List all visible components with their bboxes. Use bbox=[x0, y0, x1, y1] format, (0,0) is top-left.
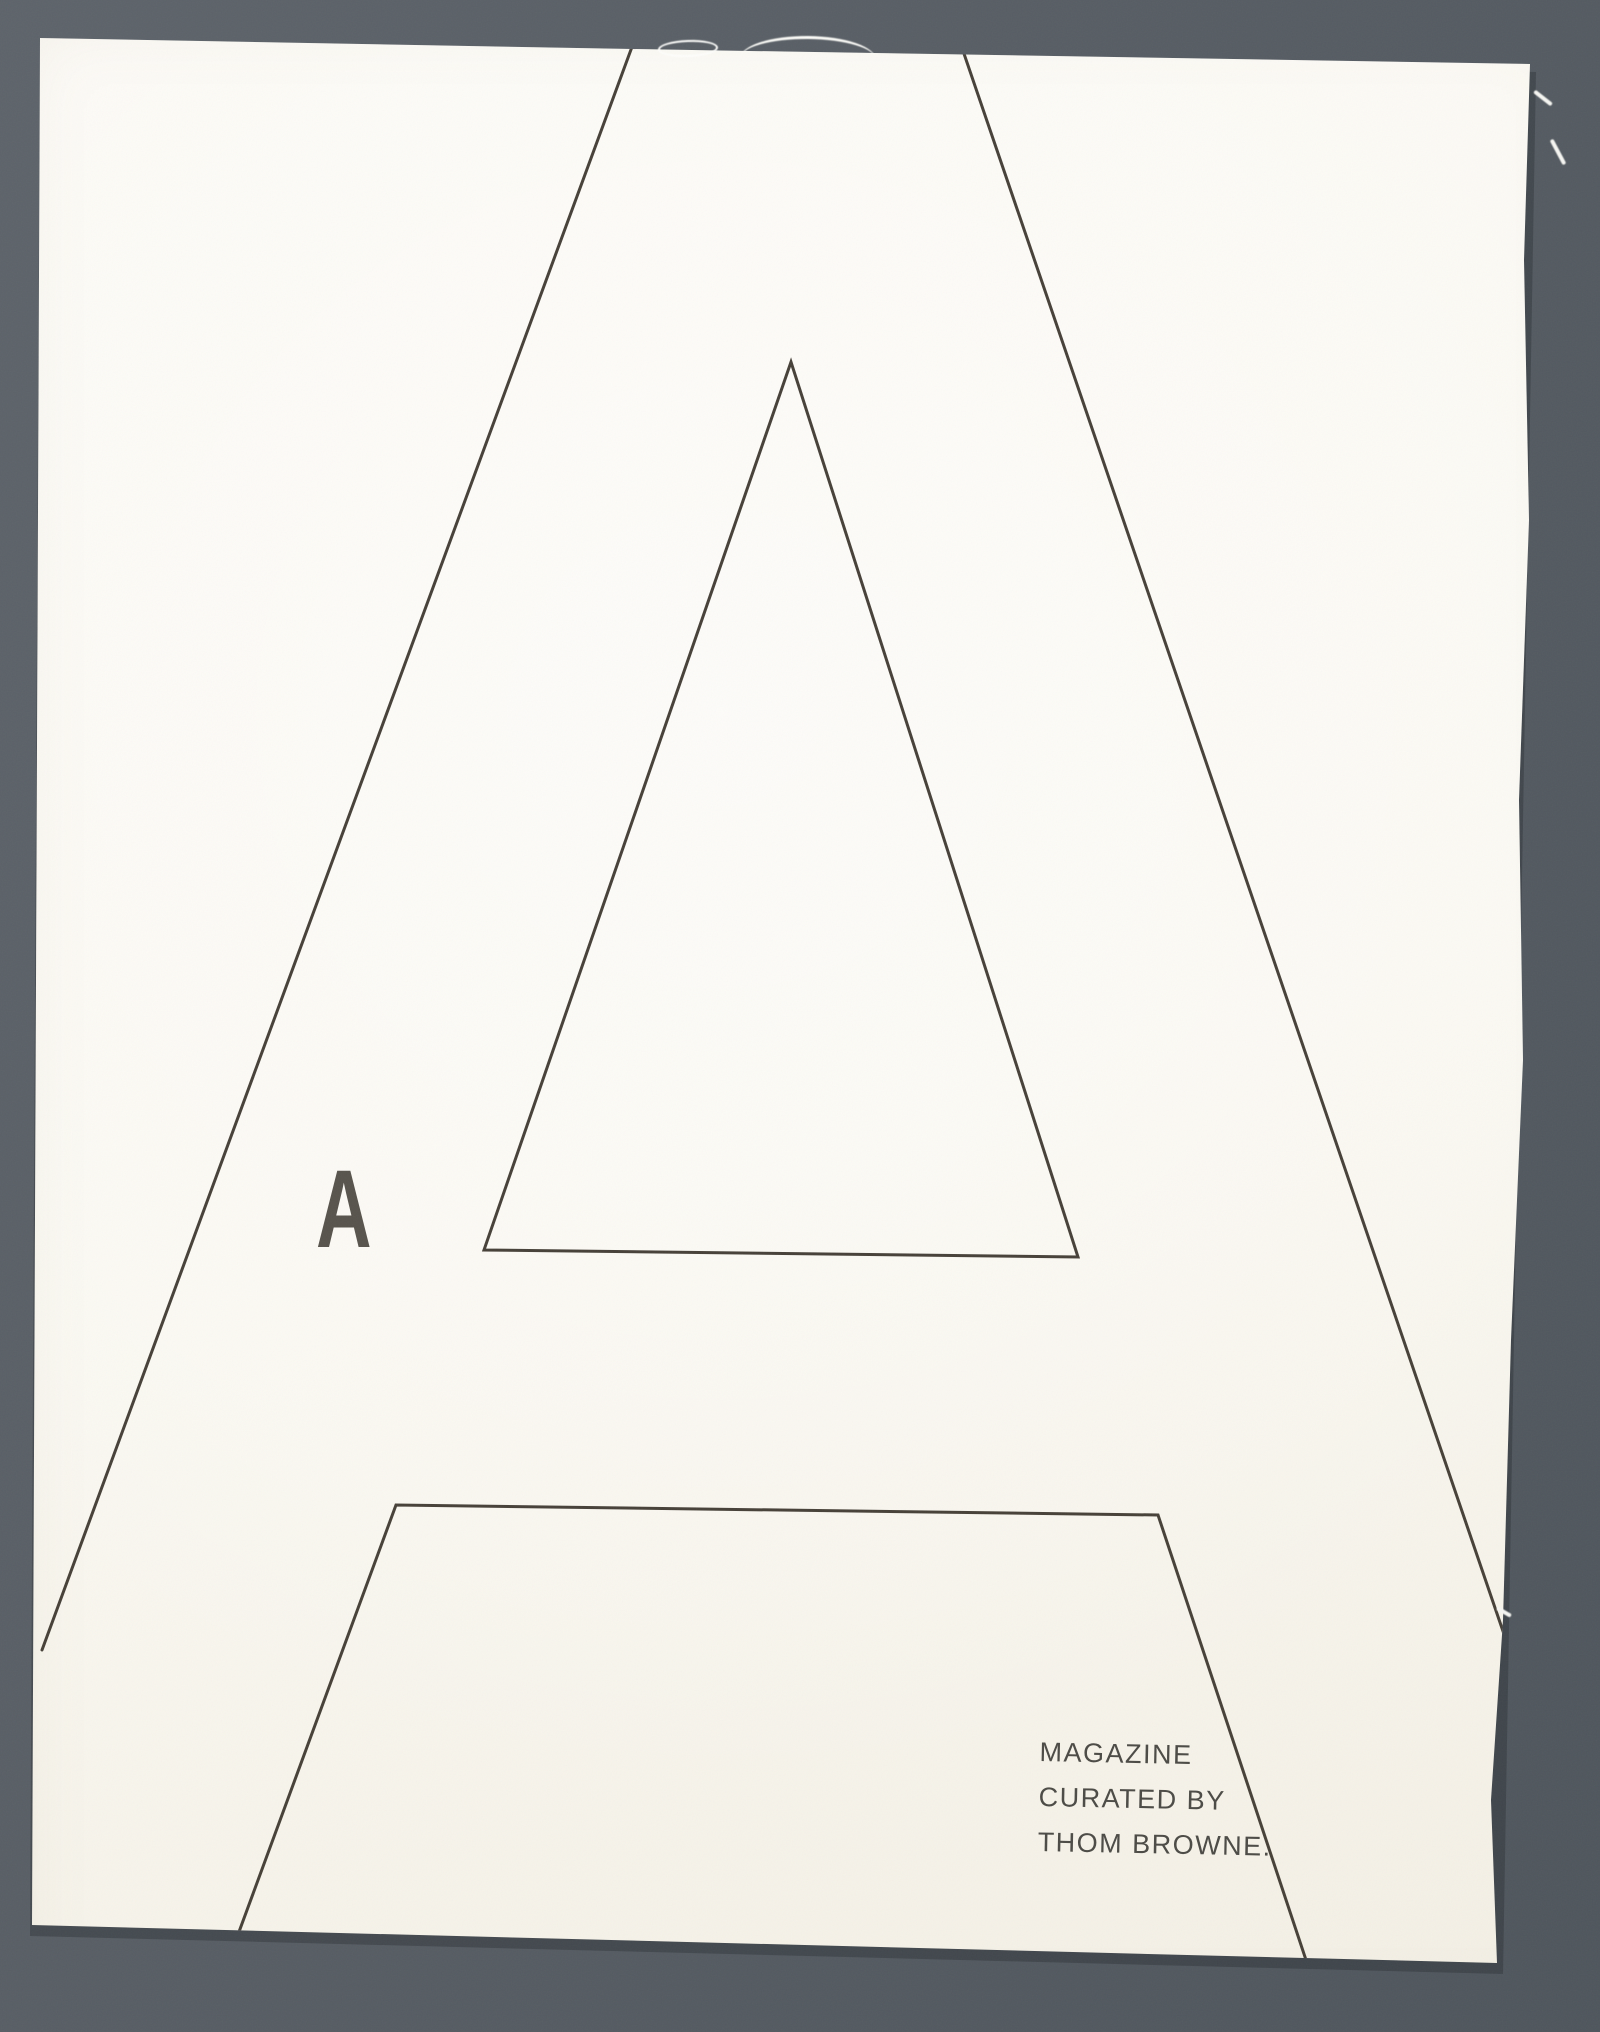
magazine-cover-sheet: A MAGAZINE CURATED BY THOM BROWNE. bbox=[0, 0, 1600, 2032]
photo-background-mat: A MAGAZINE CURATED BY THOM BROWNE. bbox=[0, 0, 1600, 2032]
caption-line-curated-by: CURATED BY bbox=[1038, 1775, 1273, 1825]
letter-a-outline-artwork bbox=[0, 0, 1600, 2032]
cover-caption: MAGAZINE CURATED BY THOM BROWNE. bbox=[1037, 1730, 1274, 1870]
small-letter-a: A bbox=[316, 1155, 372, 1265]
edge-fiber-wisp bbox=[1533, 90, 1553, 107]
caption-line-magazine: MAGAZINE bbox=[1039, 1730, 1274, 1780]
edge-fiber-wisp bbox=[1550, 139, 1567, 166]
letter-a-right-outer-stroke bbox=[960, 42, 1506, 1640]
letter-a-counter-triangle bbox=[484, 362, 1078, 1257]
caption-line-thom-browne: THOM BROWNE. bbox=[1037, 1820, 1272, 1870]
letter-a-left-outer-stroke bbox=[42, 36, 636, 1650]
